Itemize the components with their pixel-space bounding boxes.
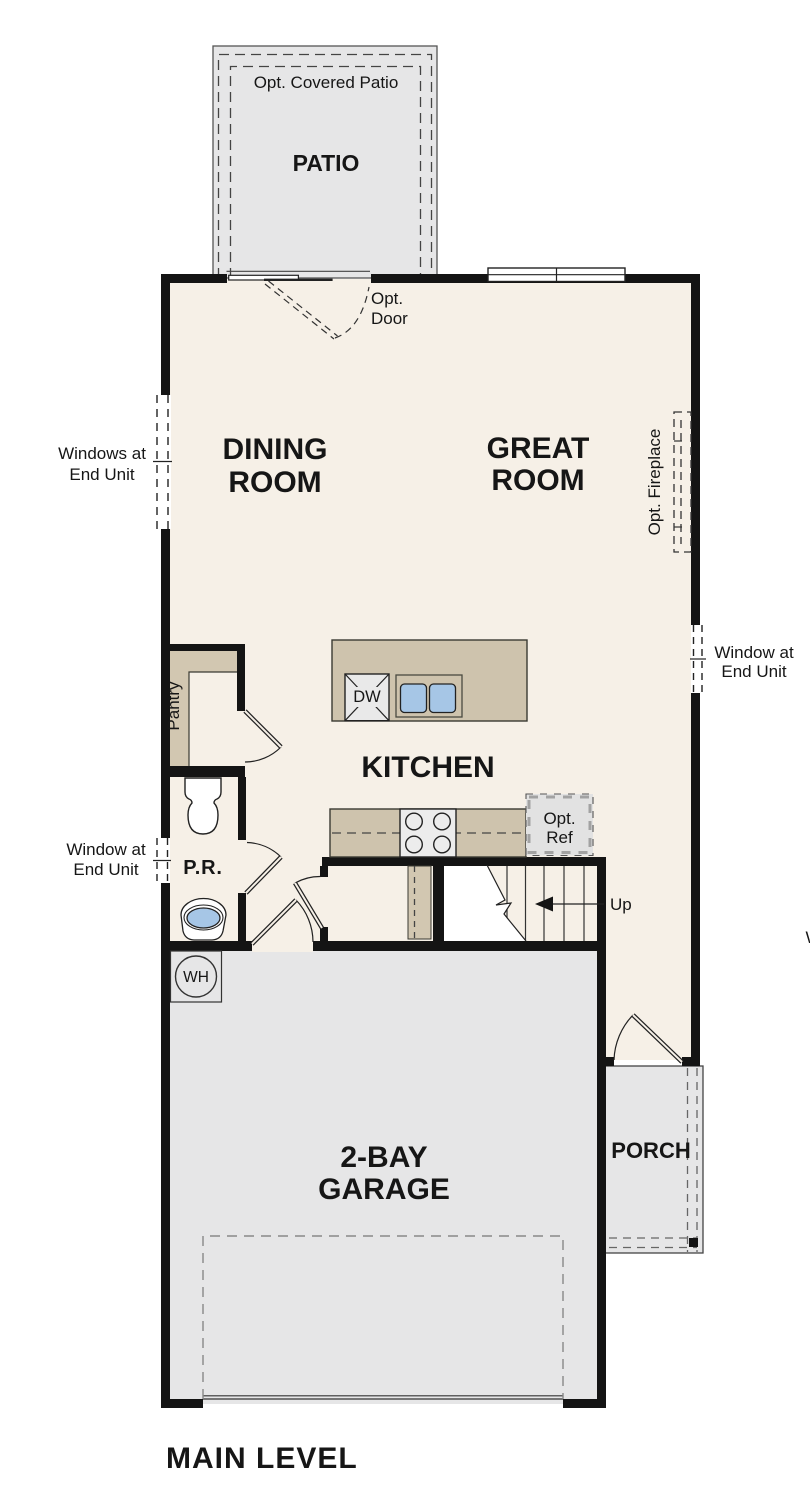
svg-text:KITCHEN: KITCHEN [361,751,494,784]
svg-text:Pantry: Pantry [164,681,183,731]
svg-text:DW: DW [353,688,381,706]
svg-text:Windows at: Windows at [58,444,146,463]
svg-text:WH: WH [183,969,209,986]
svg-text:ROOM: ROOM [228,466,321,499]
svg-text:P.R.: P.R. [183,857,223,879]
svg-text:Opt.: Opt. [371,289,403,308]
svg-text:ROOM: ROOM [491,464,584,497]
svg-text:PATIO: PATIO [293,150,360,176]
svg-text:MAIN LEVEL: MAIN LEVEL [166,1442,358,1475]
svg-text:Door: Door [371,309,408,328]
svg-text:GARAGE: GARAGE [318,1173,450,1206]
svg-text:W: W [806,928,810,947]
svg-text:DINING: DINING [223,433,328,466]
svg-text:End Unit: End Unit [73,860,138,879]
svg-text:2-BAY: 2-BAY [340,1141,427,1174]
svg-text:Opt. Fireplace: Opt. Fireplace [645,429,664,536]
svg-text:Window at: Window at [714,643,794,662]
svg-text:Opt.: Opt. [543,809,575,828]
svg-text:Opt. Covered Patio: Opt. Covered Patio [254,73,399,92]
svg-text:PORCH: PORCH [611,1138,690,1163]
svg-text:Ref: Ref [546,828,573,847]
svg-text:GREAT: GREAT [487,432,590,465]
svg-text:End Unit: End Unit [69,465,134,484]
svg-text:End Unit: End Unit [721,662,786,681]
svg-text:Up: Up [610,895,632,914]
svg-text:Window at: Window at [66,840,146,859]
